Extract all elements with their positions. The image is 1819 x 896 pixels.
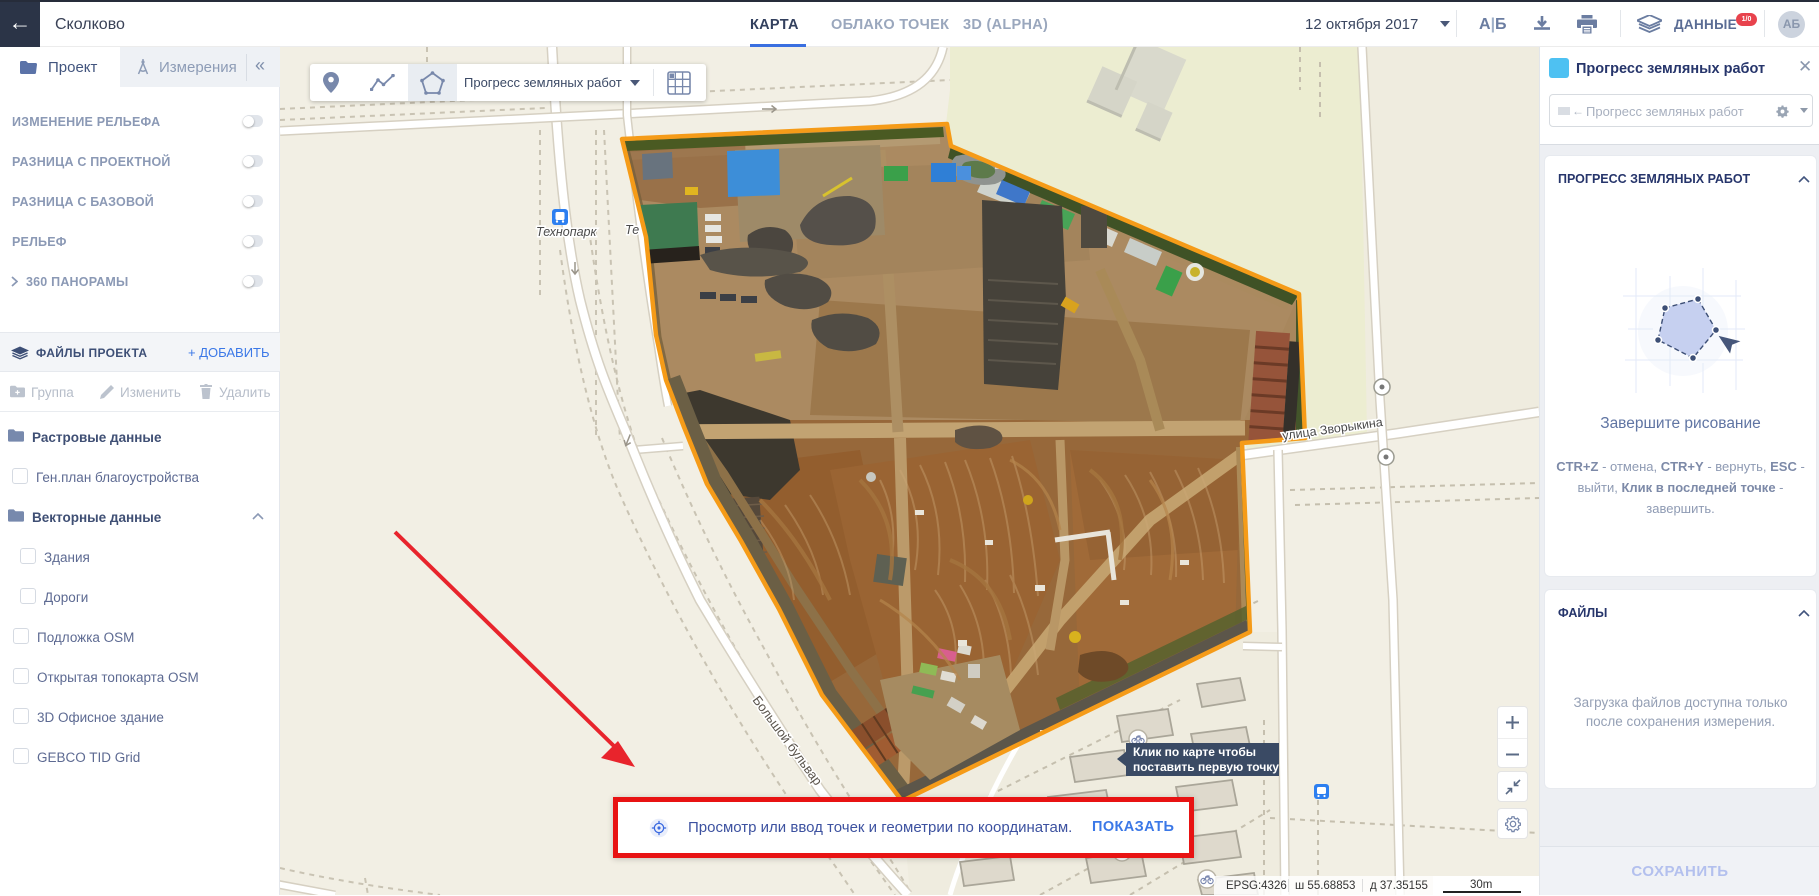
svg-text:Технопарк: Технопарк [536, 225, 597, 239]
svg-text:Те: Те [625, 223, 639, 237]
